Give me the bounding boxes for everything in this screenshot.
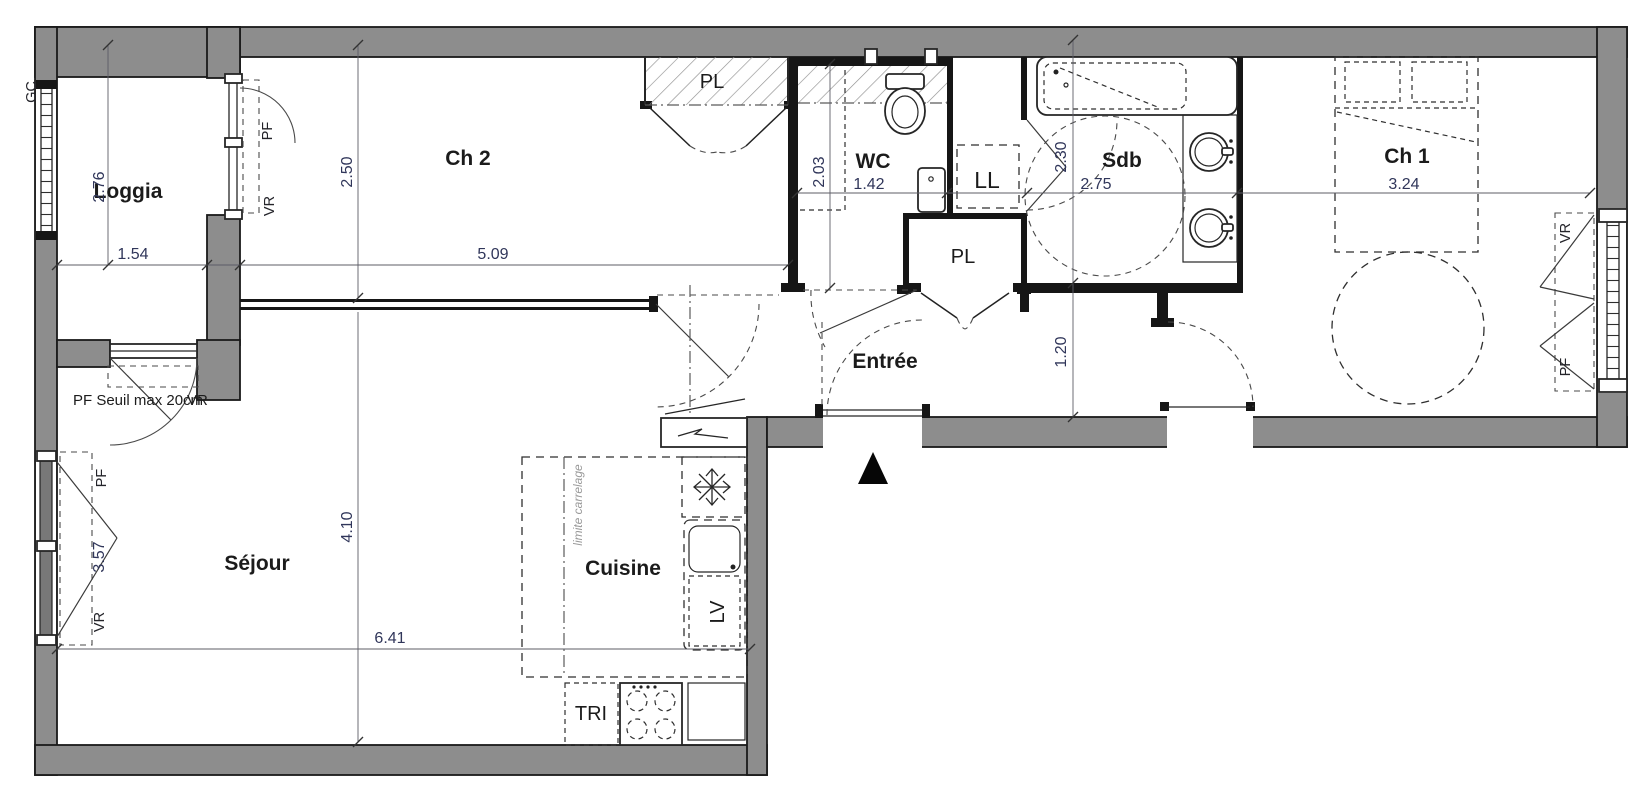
pl-hall-top-wall bbox=[903, 213, 1027, 219]
label-sejour-vr: VR bbox=[92, 612, 108, 632]
wall-bottom-left-wing bbox=[35, 745, 767, 775]
room-label-sdb: Sdb bbox=[1102, 149, 1142, 172]
ch2-door bbox=[656, 295, 779, 407]
dim-sdb-w: 2.75 bbox=[1080, 176, 1111, 193]
label-ll: LL bbox=[974, 167, 1000, 193]
ch1-door-stub bbox=[1157, 293, 1168, 320]
dim-sejour-window: 3.57 bbox=[91, 541, 108, 572]
wall-loggia-bottom-corner bbox=[197, 340, 240, 400]
entry-arrow-icon bbox=[858, 452, 888, 484]
partition-ch2-sejour bbox=[240, 307, 656, 310]
duct bbox=[925, 49, 937, 64]
ch1-turning-circle bbox=[1332, 252, 1484, 404]
room-label-cuisine: Cuisine bbox=[585, 557, 661, 580]
fridge-snowflake-icon bbox=[682, 457, 745, 517]
dim-ch1-w: 3.24 bbox=[1388, 176, 1419, 193]
label-loggia-pf: PF bbox=[260, 122, 276, 141]
pl-top-door-leaf bbox=[746, 108, 786, 146]
toilet-icon bbox=[885, 74, 925, 134]
dim-sejour-w: 6.41 bbox=[374, 630, 405, 647]
kitchen-sink-icon bbox=[684, 520, 745, 650]
room-label-ch1: Ch 1 bbox=[1384, 145, 1430, 168]
ch1-window bbox=[1540, 209, 1627, 392]
floor-plan: Loggia Ch 2 WC Sdb Ch 1 Entrée Séjour Cu… bbox=[0, 0, 1647, 800]
ch1-door-jamb bbox=[1160, 402, 1169, 411]
dim-ch2-w: 5.09 bbox=[477, 246, 508, 263]
sdb-bottom-wall bbox=[1027, 283, 1243, 293]
label-limite-carrelage: limite carrelage bbox=[571, 464, 585, 546]
floor-plan-page: Loggia Ch 2 WC Sdb Ch 1 Entrée Séjour Cu… bbox=[0, 0, 1647, 800]
wall-kitchen-right bbox=[747, 417, 767, 775]
dim-hall: 1.20 bbox=[1053, 336, 1070, 367]
label-pl-hall: PL bbox=[951, 246, 975, 268]
dimension-lines bbox=[52, 35, 1595, 747]
pl-hall-right-wall bbox=[1021, 213, 1027, 292]
room-label-wc: WC bbox=[856, 150, 891, 173]
loggia-ch2-window bbox=[225, 74, 295, 219]
sdb-left-wall bbox=[1021, 57, 1027, 120]
sdb-wall-foot bbox=[1013, 283, 1035, 292]
hand-basin-icon bbox=[918, 168, 945, 212]
sdb-wall-foot bbox=[1020, 292, 1029, 312]
partition-ch2-sejour bbox=[240, 299, 656, 302]
label-sejour-pf: PF bbox=[94, 469, 110, 488]
bathtub-icon bbox=[1037, 57, 1237, 115]
label-loggia-vr: VR bbox=[262, 196, 278, 216]
pl-hall-left-wall bbox=[903, 213, 909, 292]
dim-sejour-h: 4.10 bbox=[339, 511, 356, 542]
wall-top bbox=[35, 27, 1627, 57]
sdb-turning-circle bbox=[1025, 116, 1185, 276]
dim-wc-w: 1.42 bbox=[853, 176, 884, 193]
pl-top-door-leaf bbox=[650, 108, 690, 146]
kitchen-counter bbox=[688, 683, 745, 740]
entry-door-jamb bbox=[815, 404, 823, 418]
ch1-door-gap bbox=[1167, 406, 1253, 448]
duct bbox=[865, 49, 877, 64]
sejour-window-reservation bbox=[60, 452, 92, 645]
wall-loggia-right-upper bbox=[207, 27, 240, 78]
electrical-panel-icon bbox=[661, 399, 747, 447]
washbasin-icons bbox=[1183, 115, 1237, 262]
label-tri: TRI bbox=[575, 703, 607, 725]
wc-left-wall bbox=[788, 62, 798, 290]
pl-hall-doors bbox=[921, 293, 1009, 329]
dim-loggia-h: 2.76 bbox=[91, 171, 108, 202]
dim-ch2-h: 2.50 bbox=[339, 156, 356, 187]
entry-door-gap bbox=[823, 416, 922, 448]
wall-loggia-right bbox=[207, 215, 240, 345]
kitchen-zone bbox=[522, 285, 747, 745]
room-label-sejour: Séjour bbox=[224, 552, 289, 575]
wc-door bbox=[803, 290, 917, 347]
loggia-door-vr: VR bbox=[187, 392, 208, 409]
wall-loggia-bottom-left bbox=[57, 340, 110, 367]
entry-door-jamb bbox=[922, 404, 930, 418]
label-lv: LV bbox=[707, 600, 729, 624]
dim-sdb-h: 2.30 bbox=[1053, 141, 1070, 172]
ch1-door bbox=[1168, 322, 1253, 407]
label-ch1-vr: VR bbox=[1558, 223, 1574, 243]
label-ch1-pf: PF bbox=[1558, 358, 1574, 377]
dim-wc-h: 2.03 bbox=[811, 156, 828, 187]
label-gc: GC bbox=[24, 81, 40, 103]
room-label-entree: Entrée bbox=[852, 350, 917, 373]
wc-door-jamb bbox=[781, 283, 805, 292]
stove-icon bbox=[620, 683, 682, 745]
label-pl-top: PL bbox=[700, 71, 724, 93]
room-label-ch2: Ch 2 bbox=[445, 147, 491, 170]
loggia-door-note: PF Seuil max 20cm bbox=[73, 392, 203, 409]
dim-loggia-w: 1.54 bbox=[117, 246, 148, 263]
